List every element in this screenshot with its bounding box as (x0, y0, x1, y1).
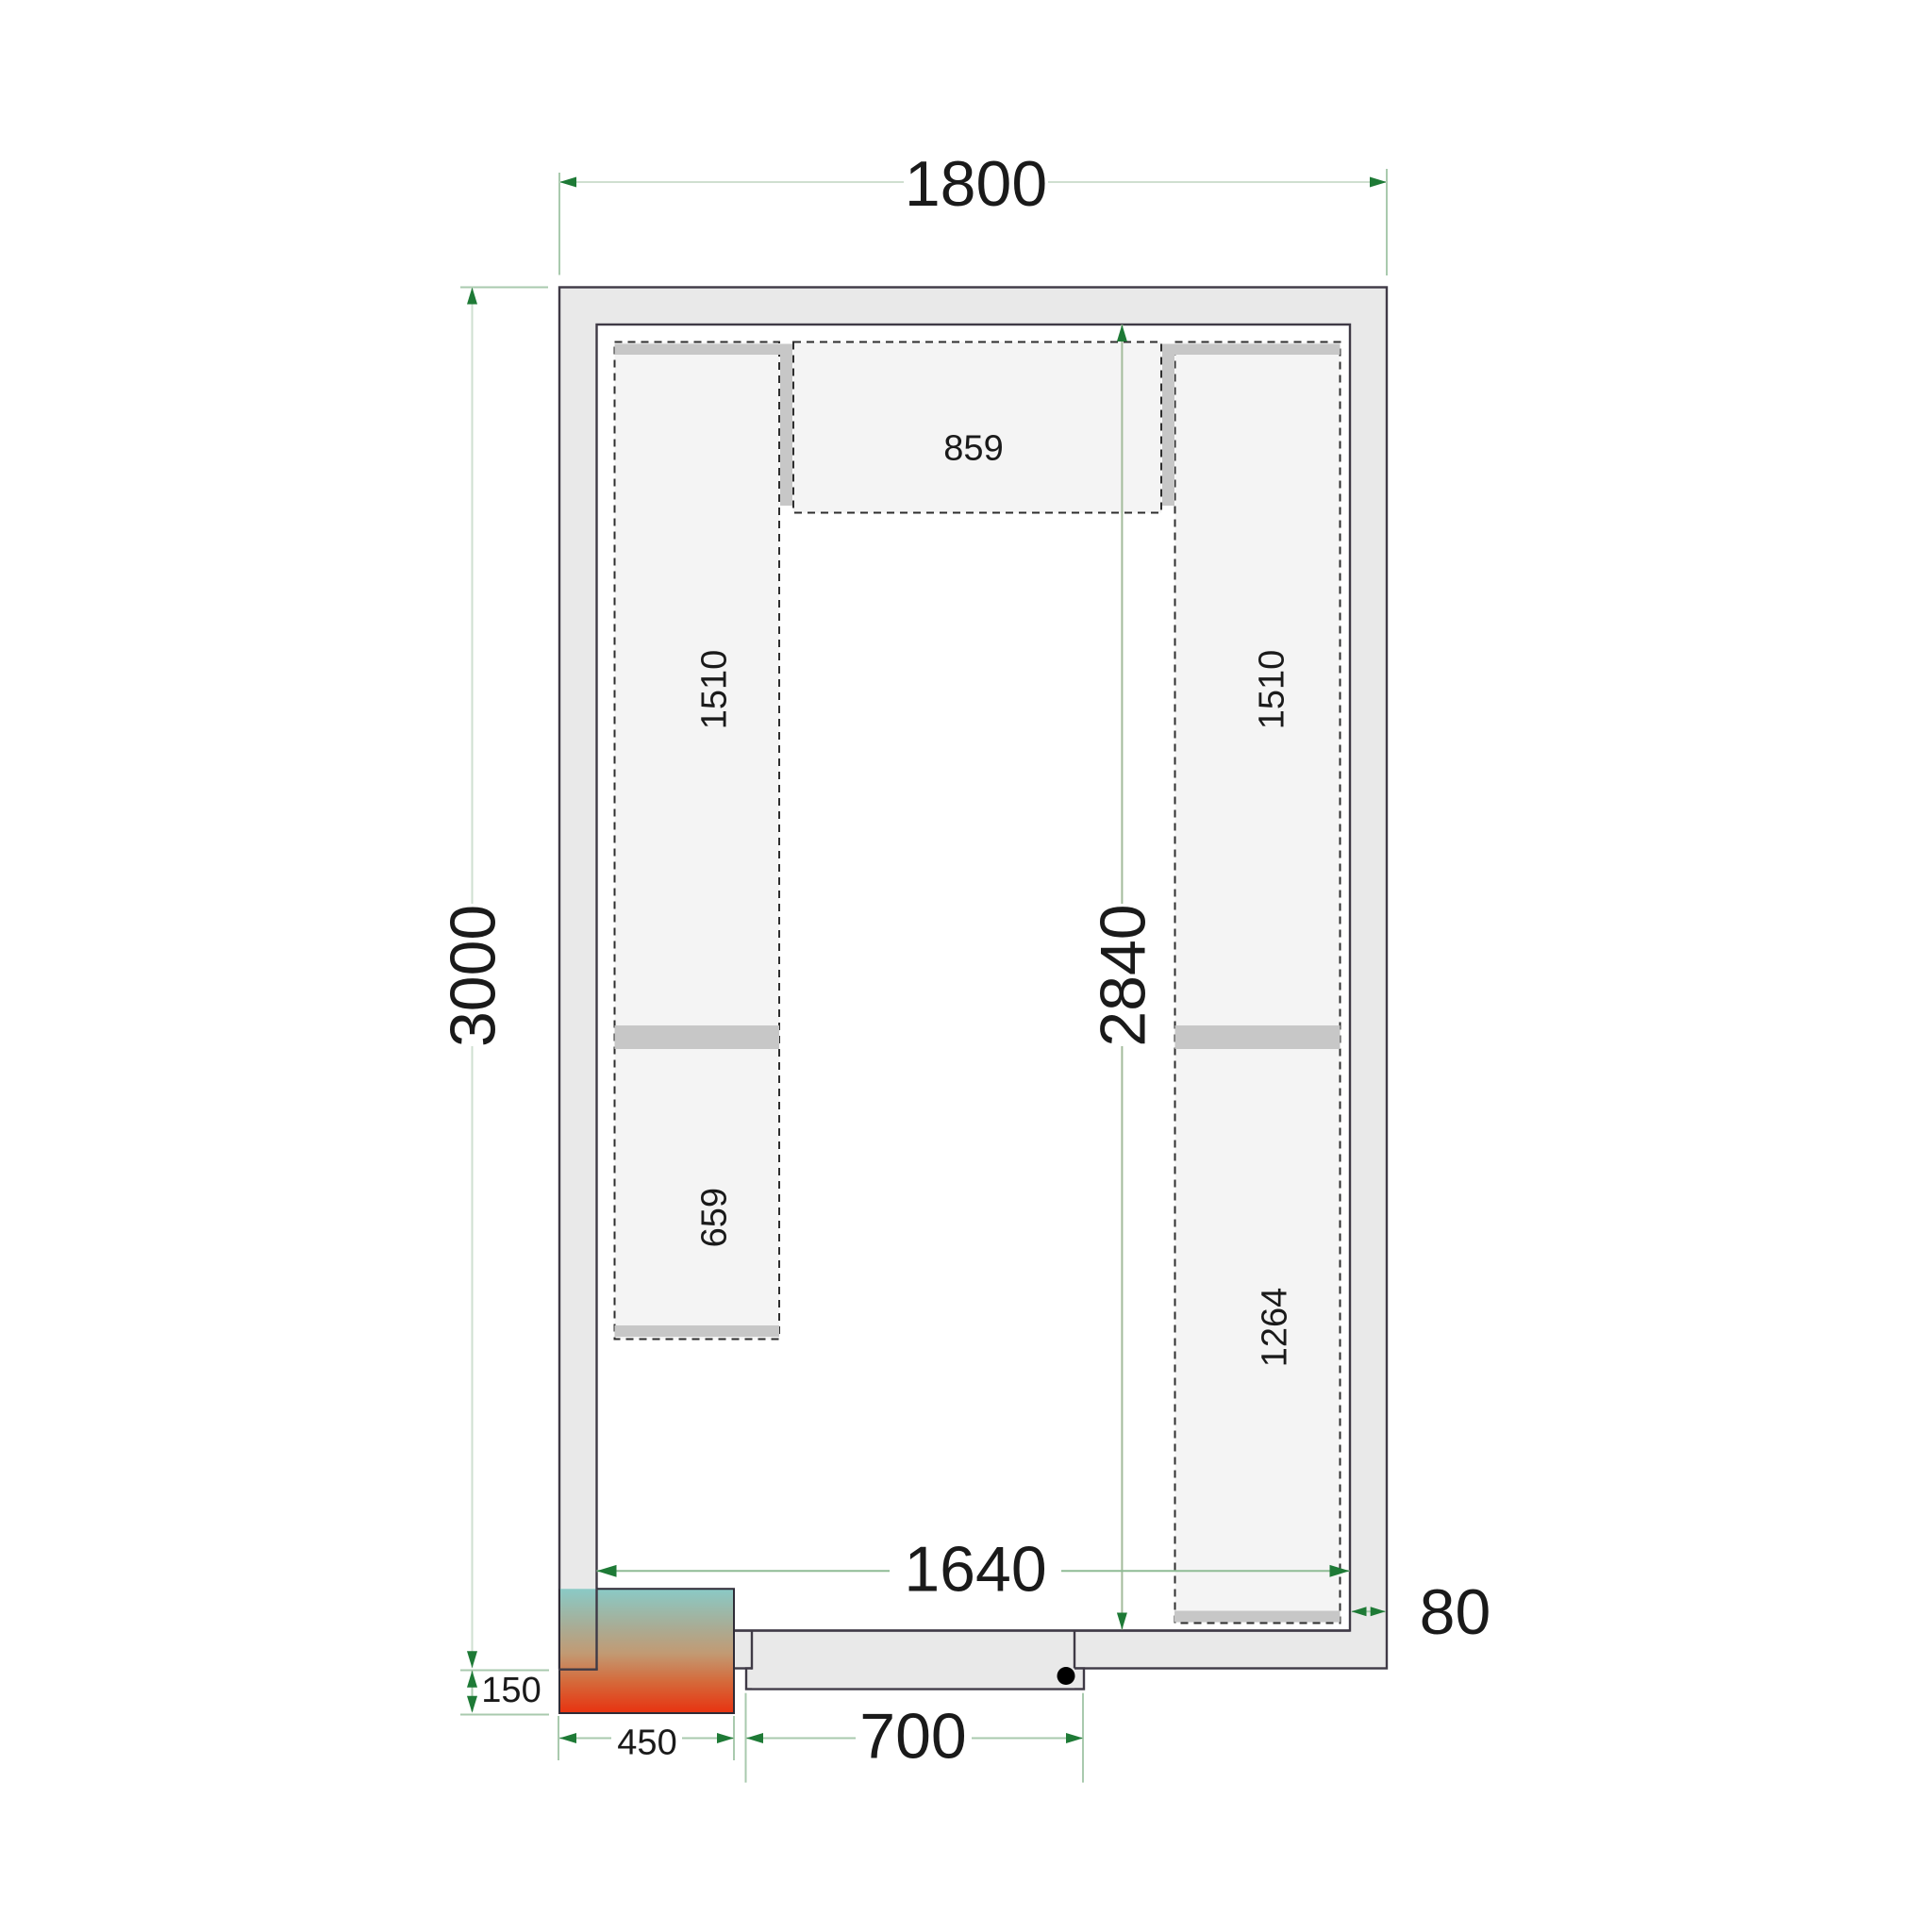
svg-text:1264: 1264 (1256, 1288, 1295, 1368)
svg-text:1510: 1510 (694, 650, 734, 730)
svg-text:150: 150 (481, 1671, 541, 1710)
svg-text:2840: 2840 (1088, 904, 1159, 1046)
svg-text:859: 859 (943, 429, 1003, 469)
svg-text:450: 450 (617, 1724, 676, 1763)
svg-text:80: 80 (1420, 1576, 1491, 1648)
svg-text:659: 659 (694, 1188, 734, 1247)
svg-text:1640: 1640 (904, 1533, 1046, 1605)
svg-text:1800: 1800 (905, 148, 1047, 220)
svg-text:1510: 1510 (1253, 650, 1292, 730)
svg-text:3000: 3000 (438, 905, 509, 1047)
svg-text:700: 700 (859, 1701, 966, 1773)
